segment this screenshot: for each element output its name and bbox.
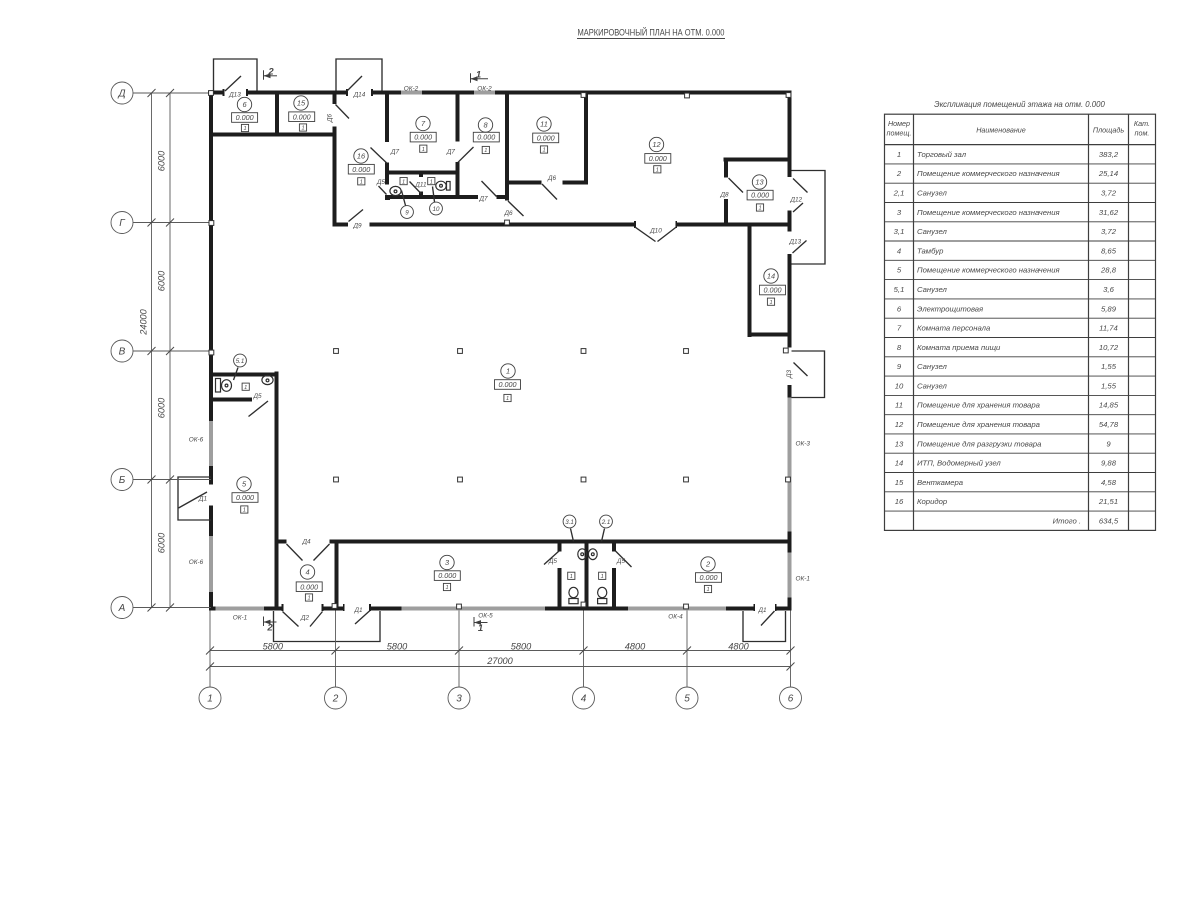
svg-text:16: 16 [357, 152, 366, 161]
svg-text:Итого .: Итого . [1053, 517, 1081, 526]
svg-text:Экспликация помещений этажа на: Экспликация помещений этажа на отм. 0.00… [934, 100, 1105, 109]
svg-text:ОК-1: ОК-1 [796, 576, 811, 583]
svg-text:5,89: 5,89 [1101, 304, 1117, 313]
svg-text:0.000: 0.000 [236, 113, 254, 122]
svg-text:Номер: Номер [888, 119, 910, 128]
svg-text:8: 8 [897, 343, 902, 352]
svg-text:1: 1 [207, 694, 213, 705]
svg-text:7: 7 [897, 324, 902, 333]
svg-text:3,72: 3,72 [1101, 189, 1117, 198]
svg-text:Д1: Д1 [198, 496, 207, 503]
svg-text:1: 1 [758, 206, 761, 212]
svg-text:10: 10 [895, 381, 904, 390]
svg-text:1: 1 [706, 587, 709, 593]
svg-text:27000: 27000 [486, 656, 513, 666]
svg-text:А: А [118, 603, 126, 614]
svg-text:2.1: 2.1 [601, 519, 611, 526]
svg-text:0.000: 0.000 [477, 133, 495, 142]
svg-text:ОК-2: ОК-2 [477, 86, 492, 93]
svg-text:Д5: Д5 [376, 179, 385, 186]
svg-text:6000: 6000 [157, 150, 167, 171]
svg-text:16: 16 [895, 497, 904, 506]
svg-text:2: 2 [896, 169, 902, 178]
svg-text:1,55: 1,55 [1101, 362, 1117, 371]
svg-text:9: 9 [897, 362, 902, 371]
svg-text:Помещение коммерческого назнач: Помещение коммерческого назначения [917, 266, 1060, 275]
svg-text:0.000: 0.000 [300, 582, 318, 591]
svg-text:0.000: 0.000 [537, 134, 555, 143]
svg-text:10: 10 [433, 206, 440, 213]
svg-text:54,78: 54,78 [1099, 420, 1119, 429]
svg-text:Помещение для разгрузки товара: Помещение для разгрузки товара [917, 439, 1042, 448]
svg-text:Помещение коммерческого назнач: Помещение коммерческого назначения [917, 208, 1060, 217]
svg-text:Д11: Д11 [414, 182, 427, 189]
svg-text:Санузел: Санузел [917, 381, 947, 390]
svg-text:1: 1 [484, 148, 487, 154]
svg-text:0.000: 0.000 [499, 380, 517, 389]
svg-text:1: 1 [422, 147, 425, 153]
svg-text:ОК-2: ОК-2 [404, 86, 419, 93]
svg-text:1: 1 [506, 367, 510, 376]
svg-text:Санузел: Санузел [917, 189, 947, 198]
svg-text:9: 9 [1106, 439, 1111, 448]
svg-text:1: 1 [301, 126, 304, 132]
svg-text:1: 1 [570, 574, 573, 580]
svg-text:11: 11 [540, 120, 548, 129]
svg-text:31,62: 31,62 [1099, 208, 1119, 217]
svg-text:0.000: 0.000 [700, 573, 718, 582]
svg-text:5800: 5800 [511, 642, 532, 652]
svg-text:12: 12 [895, 420, 904, 429]
svg-text:634,5: 634,5 [1099, 517, 1119, 526]
svg-text:6000: 6000 [157, 397, 167, 418]
svg-text:Помещение для хранения товара: Помещение для хранения товара [917, 401, 1041, 410]
svg-text:2: 2 [332, 694, 339, 705]
svg-text:ОК-1: ОК-1 [233, 615, 248, 622]
svg-text:13: 13 [895, 439, 904, 448]
svg-text:2: 2 [267, 67, 274, 78]
svg-text:15: 15 [895, 478, 904, 487]
svg-text:3,72: 3,72 [1101, 227, 1117, 236]
svg-text:6000: 6000 [157, 270, 167, 291]
svg-text:Коридор: Коридор [917, 497, 948, 506]
svg-text:1: 1 [601, 574, 604, 580]
svg-text:6: 6 [897, 304, 902, 313]
svg-text:1: 1 [769, 300, 772, 306]
svg-text:1: 1 [243, 126, 246, 132]
svg-text:Д1: Д1 [757, 607, 766, 614]
svg-text:10,72: 10,72 [1099, 343, 1119, 352]
svg-text:0.000: 0.000 [414, 133, 432, 142]
svg-text:0.000: 0.000 [236, 493, 254, 502]
svg-text:Д14: Д14 [353, 92, 366, 99]
svg-text:Комната персонала: Комната персонала [917, 324, 991, 333]
svg-text:Д3: Д3 [786, 370, 793, 379]
svg-text:24000: 24000 [139, 308, 149, 335]
svg-text:Наименование: Наименование [976, 126, 1026, 135]
svg-text:1: 1 [244, 385, 247, 391]
svg-text:25,14: 25,14 [1098, 169, 1118, 178]
svg-text:Кат.: Кат. [1134, 119, 1150, 128]
svg-text:Электрощитовая: Электрощитовая [917, 304, 983, 313]
svg-text:28,8: 28,8 [1100, 266, 1117, 275]
svg-text:4: 4 [897, 246, 901, 255]
svg-text:1: 1 [897, 150, 901, 159]
svg-text:Санузел: Санузел [917, 285, 947, 294]
svg-text:Комната приема пищи: Комната приема пищи [917, 343, 1001, 352]
svg-text:3,6: 3,6 [1103, 285, 1114, 294]
svg-text:1: 1 [506, 396, 509, 402]
svg-text:5800: 5800 [387, 642, 408, 652]
svg-text:Б: Б [119, 475, 126, 486]
svg-text:1: 1 [656, 168, 659, 174]
svg-text:14: 14 [895, 459, 904, 468]
svg-text:Д7: Д7 [446, 149, 455, 156]
svg-text:Д5: Д5 [548, 558, 557, 565]
svg-text:МАРКИРОВОЧНЫЙ ПЛАН НА ОТМ. 0.0: МАРКИРОВОЧНЫЙ ПЛАН НА ОТМ. 0.000 [578, 27, 725, 38]
svg-text:6: 6 [788, 694, 794, 705]
svg-text:5,1: 5,1 [894, 285, 905, 294]
svg-text:3: 3 [897, 208, 902, 217]
svg-text:5.1: 5.1 [236, 358, 245, 365]
svg-text:ОК-6: ОК-6 [189, 559, 204, 566]
svg-text:1: 1 [307, 596, 310, 602]
svg-text:Д5: Д5 [252, 393, 261, 400]
svg-text:9: 9 [405, 210, 409, 217]
svg-text:15: 15 [297, 99, 306, 108]
svg-text:2: 2 [266, 623, 273, 634]
svg-text:1: 1 [430, 179, 433, 185]
svg-text:1: 1 [360, 180, 363, 186]
svg-text:Помещение для хранения товара: Помещение для хранения товара [917, 420, 1041, 429]
svg-text:12: 12 [652, 140, 660, 149]
svg-text:Торговый зал: Торговый зал [917, 150, 967, 159]
svg-text:2: 2 [705, 560, 710, 569]
svg-text:13: 13 [755, 178, 764, 187]
svg-text:Д4: Д4 [301, 539, 310, 546]
svg-text:Помещение коммерческого назнач: Помещение коммерческого назначения [917, 169, 1060, 178]
svg-text:5: 5 [897, 266, 902, 275]
svg-text:9,88: 9,88 [1101, 459, 1117, 468]
svg-text:0.000: 0.000 [649, 154, 667, 163]
svg-text:Тамбур: Тамбур [917, 246, 944, 255]
svg-text:1: 1 [476, 70, 481, 81]
svg-text:5800: 5800 [263, 642, 284, 652]
svg-text:383,2: 383,2 [1099, 150, 1119, 159]
svg-text:Д2: Д2 [300, 615, 309, 622]
svg-text:Санузел: Санузел [917, 227, 947, 236]
svg-text:3.1: 3.1 [565, 519, 574, 526]
svg-text:Санузел: Санузел [917, 362, 947, 371]
svg-text:ОК-3: ОК-3 [796, 441, 811, 448]
svg-text:Д1: Д1 [353, 607, 362, 614]
svg-text:Д6: Д6 [503, 210, 512, 217]
svg-text:1,55: 1,55 [1101, 381, 1117, 390]
svg-text:0.000: 0.000 [438, 571, 456, 580]
svg-text:Д13: Д13 [228, 92, 241, 99]
svg-text:11,74: 11,74 [1099, 324, 1118, 333]
svg-text:Д9: Д9 [352, 223, 361, 230]
svg-text:6000: 6000 [157, 532, 167, 553]
svg-text:В: В [119, 347, 126, 358]
svg-text:14,85: 14,85 [1099, 401, 1119, 410]
svg-text:Д12: Д12 [790, 197, 803, 204]
svg-text:Д6: Д6 [547, 175, 556, 182]
svg-text:ОК-4: ОК-4 [668, 614, 683, 621]
svg-text:Д7: Д7 [478, 196, 487, 203]
svg-text:0.000: 0.000 [352, 165, 370, 174]
svg-text:Венткамера: Венткамера [917, 478, 964, 487]
svg-text:1: 1 [445, 585, 448, 591]
svg-text:ОК-6: ОК-6 [189, 437, 204, 444]
svg-text:0.000: 0.000 [751, 191, 769, 200]
svg-text:0.000: 0.000 [293, 112, 311, 121]
svg-text:21,51: 21,51 [1098, 497, 1118, 506]
svg-text:1: 1 [402, 179, 405, 185]
svg-text:ОК-5: ОК-5 [478, 613, 493, 620]
svg-text:4,58: 4,58 [1101, 478, 1117, 487]
svg-text:0.000: 0.000 [764, 286, 782, 295]
svg-text:Д6: Д6 [327, 114, 334, 123]
svg-text:1: 1 [542, 148, 545, 154]
svg-text:5: 5 [684, 694, 690, 705]
svg-text:1: 1 [478, 623, 483, 634]
svg-text:2,1: 2,1 [893, 189, 905, 198]
svg-text:4800: 4800 [625, 642, 646, 652]
svg-text:1: 1 [243, 508, 246, 514]
svg-text:помещ.: помещ. [887, 129, 912, 138]
svg-text:3,1: 3,1 [894, 227, 905, 236]
svg-text:3: 3 [456, 694, 462, 705]
svg-text:11: 11 [895, 401, 903, 410]
svg-text:Д5: Д5 [616, 558, 625, 565]
svg-text:ИТП, Водомерный узел: ИТП, Водомерный узел [917, 459, 1001, 468]
svg-text:пом.: пом. [1135, 129, 1150, 138]
svg-text:8,65: 8,65 [1101, 246, 1117, 255]
svg-text:Д: Д [117, 89, 125, 100]
svg-text:14: 14 [767, 272, 775, 281]
svg-text:Д13: Д13 [789, 239, 802, 246]
svg-text:4: 4 [581, 694, 587, 705]
svg-text:4800: 4800 [728, 642, 749, 652]
svg-text:Д10: Д10 [649, 228, 662, 235]
svg-text:Д8: Д8 [719, 192, 728, 199]
svg-text:Д7: Д7 [390, 149, 399, 156]
svg-text:Площадь: Площадь [1093, 126, 1124, 135]
svg-text:4: 4 [305, 568, 309, 577]
